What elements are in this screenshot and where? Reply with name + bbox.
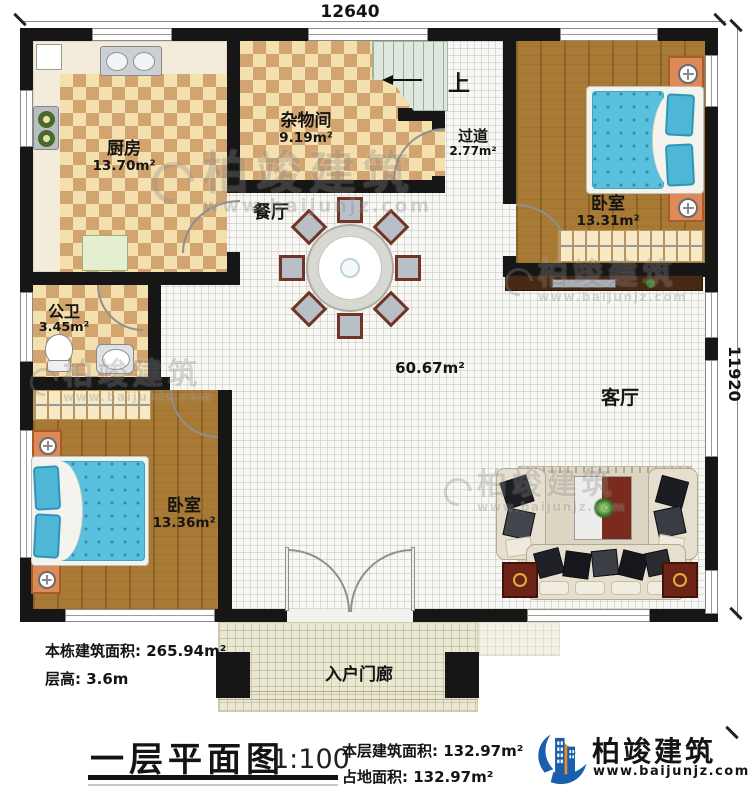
bathroom-sink	[96, 344, 134, 374]
kitchen-stove	[33, 106, 59, 150]
scale-label: 1:100	[272, 744, 350, 775]
sofa-cushion	[539, 581, 569, 595]
wall-kitchen-east-stub	[227, 252, 240, 272]
footprint-line: 占地面积: 132.97m²	[342, 766, 493, 787]
window-left-kitchen	[20, 90, 33, 147]
floor-area-label: 本层建筑面积:	[342, 742, 438, 760]
bed-tr-pillow	[665, 93, 695, 136]
bed-bl-pillow	[33, 513, 61, 558]
dimension-tick-topleft	[13, 13, 26, 26]
room-name: 过道	[442, 128, 504, 145]
storage-label: 杂物间 9.19m²	[268, 112, 344, 146]
room-area: 3.45m²	[36, 321, 92, 335]
wall-bedroom-bl-east	[218, 390, 232, 609]
room-area: 13.31m²	[572, 214, 644, 229]
bedroom-tr-label: 卧室 13.31m²	[572, 195, 644, 229]
window-right-lower	[705, 570, 718, 614]
sink-basin-left	[106, 52, 128, 71]
brand-logo-icon	[536, 728, 588, 790]
side-table-right	[662, 562, 698, 598]
entry-door-left-leaf	[285, 547, 289, 611]
entry-door-right-leaf	[411, 547, 415, 611]
bathroom-label: 公卫 3.45m²	[36, 303, 92, 335]
wall-kitchen-east	[227, 41, 240, 193]
room-name: 入户门廊	[316, 666, 402, 685]
living-label: 客厅	[592, 388, 648, 409]
terrace-strip	[478, 622, 560, 656]
title-underline	[88, 775, 338, 780]
stairs-arrow-line	[392, 79, 422, 81]
nightstand	[31, 564, 61, 594]
wardrobe-tr	[558, 230, 704, 262]
porch-step-line-1	[219, 691, 477, 692]
tv-screen	[552, 279, 616, 288]
tv-cabinet	[505, 275, 703, 291]
dimension-tick-corner-br	[725, 726, 738, 739]
nightstand-lamp	[678, 198, 698, 218]
wall-bedroom-tr-west	[503, 41, 516, 204]
building-area-line: 本栋建筑面积: 265.94m²	[45, 640, 226, 661]
building-area-value: 265.94m²	[146, 642, 226, 660]
floor-area-value: 132.97m²	[443, 742, 523, 760]
dining-chair	[337, 313, 363, 339]
window-right-living	[705, 360, 718, 457]
stove-burner-1	[38, 111, 55, 128]
room-name: 卧室	[572, 195, 644, 214]
nightstand	[668, 190, 704, 222]
room-name: 卧室	[148, 497, 220, 516]
dimension-right-label: 11920	[725, 346, 744, 402]
dining-chair	[337, 197, 363, 223]
dimension-tick-topright	[713, 13, 726, 26]
room-area: 13.70m²	[84, 159, 164, 174]
nightstand-lamp	[39, 437, 57, 455]
window-top-bedroom	[560, 28, 658, 41]
window-top-stairs	[308, 28, 428, 41]
window-right-bedroom	[705, 55, 718, 107]
footprint-label: 占地面积:	[342, 768, 408, 786]
room-name: 餐厅	[244, 203, 298, 223]
sink-basin-right	[133, 52, 155, 71]
room-name: 杂物间	[268, 112, 344, 131]
kitchen-sink	[100, 46, 162, 76]
window-right-upper	[705, 292, 718, 338]
sofa-cushion	[611, 581, 641, 595]
dimension-tick-right-bottom	[729, 607, 742, 620]
floor-height-line: 层高: 3.6m	[45, 668, 128, 689]
porch-column-right	[445, 652, 479, 698]
nightstand-lamp	[678, 64, 698, 84]
window-left-bathroom	[20, 292, 33, 362]
stairs-arrow-head	[382, 75, 393, 85]
coffee-table	[574, 476, 632, 540]
bed-tr-pillow	[665, 143, 695, 186]
room-name: 公卫	[36, 303, 92, 321]
kitchen-label: 厨房 13.70m²	[84, 140, 164, 174]
wall-bathroom-east	[148, 272, 161, 377]
wall-storage-south	[240, 180, 432, 193]
title-underline-shadow	[88, 784, 338, 786]
porch-step-line-2	[219, 699, 477, 700]
page-title: 一层平面图	[90, 732, 285, 781]
tv-cabinet-plant	[646, 279, 655, 288]
room-area: 13.36m²	[148, 516, 220, 531]
window-bottom-bedroom	[65, 609, 215, 622]
dining-label: 餐厅	[244, 203, 298, 223]
wall-bedroom-bl-north	[20, 377, 170, 390]
kitchen-wall-cabinet	[36, 44, 62, 70]
wall-storage-east-up	[432, 108, 445, 130]
window-top-kitchen	[92, 28, 172, 41]
floor-area-line: 本层建筑面积: 132.97m²	[342, 740, 523, 761]
hallway-label: 过道 2.77m²	[442, 128, 504, 158]
footprint-value: 132.97m²	[413, 768, 493, 786]
dimension-tick-right-top	[729, 19, 742, 32]
bathroom-sink-basin	[102, 349, 130, 370]
wardrobe-bl	[33, 390, 151, 420]
dimension-top-label: 12640	[285, 2, 415, 22]
building-area-label: 本栋建筑面积:	[45, 642, 141, 660]
brand-url: www.baijunjz.com	[593, 764, 750, 779]
porch-label: 入户门廊	[316, 666, 402, 685]
side-table-left	[502, 562, 538, 598]
wall-kitchen-south	[20, 272, 240, 285]
bed-bl-pillow	[33, 465, 61, 510]
brand-logo: 柏竣建筑 www.baijunjz.com	[536, 728, 726, 790]
side-table-medallion	[513, 573, 527, 587]
floor-plan-page: 12640 11920	[0, 0, 750, 797]
open-area-label: 60.67m²	[394, 360, 466, 377]
floor-height-label: 层高:	[45, 670, 81, 688]
coffee-table-plant	[589, 493, 618, 522]
side-table-medallion	[673, 573, 687, 587]
dimension-top-line	[20, 21, 726, 22]
kitchen-fridge	[82, 235, 128, 271]
room-name: 客厅	[592, 388, 648, 409]
sofa-cushion	[575, 581, 605, 595]
stove-burner-2	[38, 130, 55, 147]
room-name: 厨房	[84, 140, 164, 159]
dining-chair	[279, 255, 305, 281]
stairs-up-label: 上	[448, 66, 470, 98]
window-bottom-living	[527, 609, 650, 622]
dimension-right-line	[737, 26, 738, 618]
dining-table-center	[340, 258, 360, 278]
dining-chair	[395, 255, 421, 281]
room-area: 2.77m²	[442, 145, 504, 158]
sofa-pillow	[562, 550, 591, 579]
sofa-pillow	[591, 549, 620, 578]
room-area: 9.19m²	[268, 131, 344, 146]
toilet-tank	[47, 360, 71, 372]
floor-height-value: 3.6m	[86, 670, 128, 688]
nightstand-lamp	[38, 571, 56, 589]
sofa-pillow	[653, 505, 686, 538]
bedroom-bl-label: 卧室 13.36m²	[148, 497, 220, 531]
nightstand	[668, 56, 704, 88]
